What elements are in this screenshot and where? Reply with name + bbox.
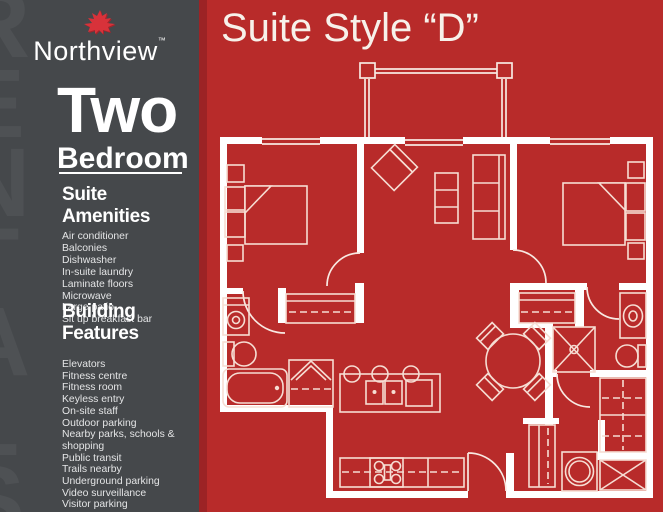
- nightstand: [227, 245, 243, 261]
- nightstand: [628, 243, 644, 259]
- closet-c: [519, 293, 575, 323]
- list-item: Keyless entry: [62, 394, 199, 406]
- nightstand: [628, 162, 644, 178]
- toilet-icon: [616, 345, 638, 367]
- bed-fold: [599, 183, 625, 210]
- amenities-heading: Suite Amenities: [62, 184, 198, 228]
- suite-type-line1: Two: [57, 78, 189, 142]
- balcony: [360, 63, 512, 137]
- maple-leaf-icon: [84, 10, 116, 35]
- brand-logo: Northview™: [0, 10, 199, 67]
- bedroom-2: [563, 162, 645, 259]
- list-item: On-site staff: [62, 406, 199, 418]
- list-item: Video surveillance: [62, 488, 199, 500]
- list-item: Outdoor parking: [62, 418, 199, 430]
- nightstand: [225, 187, 245, 210]
- list-item: Trails nearby: [62, 464, 199, 476]
- sofa-icon: [473, 155, 505, 239]
- building-features-section: Building Features ElevatorsFitness centr…: [62, 301, 199, 511]
- suite-type: Two Bedroom: [57, 78, 189, 174]
- page-title: Suite Style “D”: [221, 6, 479, 51]
- features-heading: Building Features: [62, 301, 199, 345]
- nightstand: [626, 213, 645, 240]
- dishwasher-icon: [406, 380, 432, 406]
- list-item: Visitor parking: [62, 499, 199, 511]
- suite-type-line2: Bedroom: [57, 144, 189, 174]
- tv-console: [435, 173, 458, 223]
- list-item: Dishwasher: [62, 255, 198, 267]
- dining-area: [477, 323, 551, 401]
- list-item: Public transit: [62, 453, 199, 465]
- nightstand: [225, 212, 245, 237]
- closet-b: [289, 360, 333, 407]
- list-item: Laminate floors: [62, 279, 198, 291]
- windows: [262, 139, 610, 145]
- kitchen: [340, 366, 464, 487]
- brand-name: Northview: [33, 36, 158, 66]
- list-item: Fitness room: [62, 382, 199, 394]
- bedroom-1: [225, 165, 307, 261]
- list-item: Nearby parks, schools & shopping: [62, 429, 199, 452]
- bathroom-1: [223, 298, 287, 407]
- armchair-icon: [371, 145, 417, 191]
- suite-card: R E N T A L S Northview™ Two Bedroom Sui…: [0, 0, 663, 512]
- trademark-symbol: ™: [158, 36, 166, 45]
- list-item: Air conditioner: [62, 231, 198, 243]
- hall-closet: [286, 294, 355, 323]
- features-list: ElevatorsFitness centreFitness roomKeyle…: [62, 359, 199, 511]
- nightstand: [626, 183, 645, 211]
- list-item: Underground parking: [62, 476, 199, 488]
- panel-divider: [199, 0, 207, 512]
- walls: [220, 137, 653, 498]
- divider-rule: [59, 172, 182, 174]
- list-item: Elevators: [62, 359, 199, 371]
- living-room: [371, 145, 505, 239]
- watermark-text: R E N T A L S: [0, 0, 28, 512]
- list-item: Balconies: [62, 243, 198, 255]
- list-item: In-suite laundry: [62, 267, 198, 279]
- list-item: Fitness centre: [62, 371, 199, 383]
- pantry-closet: [529, 425, 555, 487]
- nightstand: [227, 165, 244, 182]
- bed-fold: [245, 186, 271, 213]
- sidebar: R E N T A L S Northview™ Two Bedroom Sui…: [0, 0, 199, 512]
- floor-plan: [207, 0, 663, 512]
- floor-plan-panel: Suite Style “D”: [207, 0, 663, 512]
